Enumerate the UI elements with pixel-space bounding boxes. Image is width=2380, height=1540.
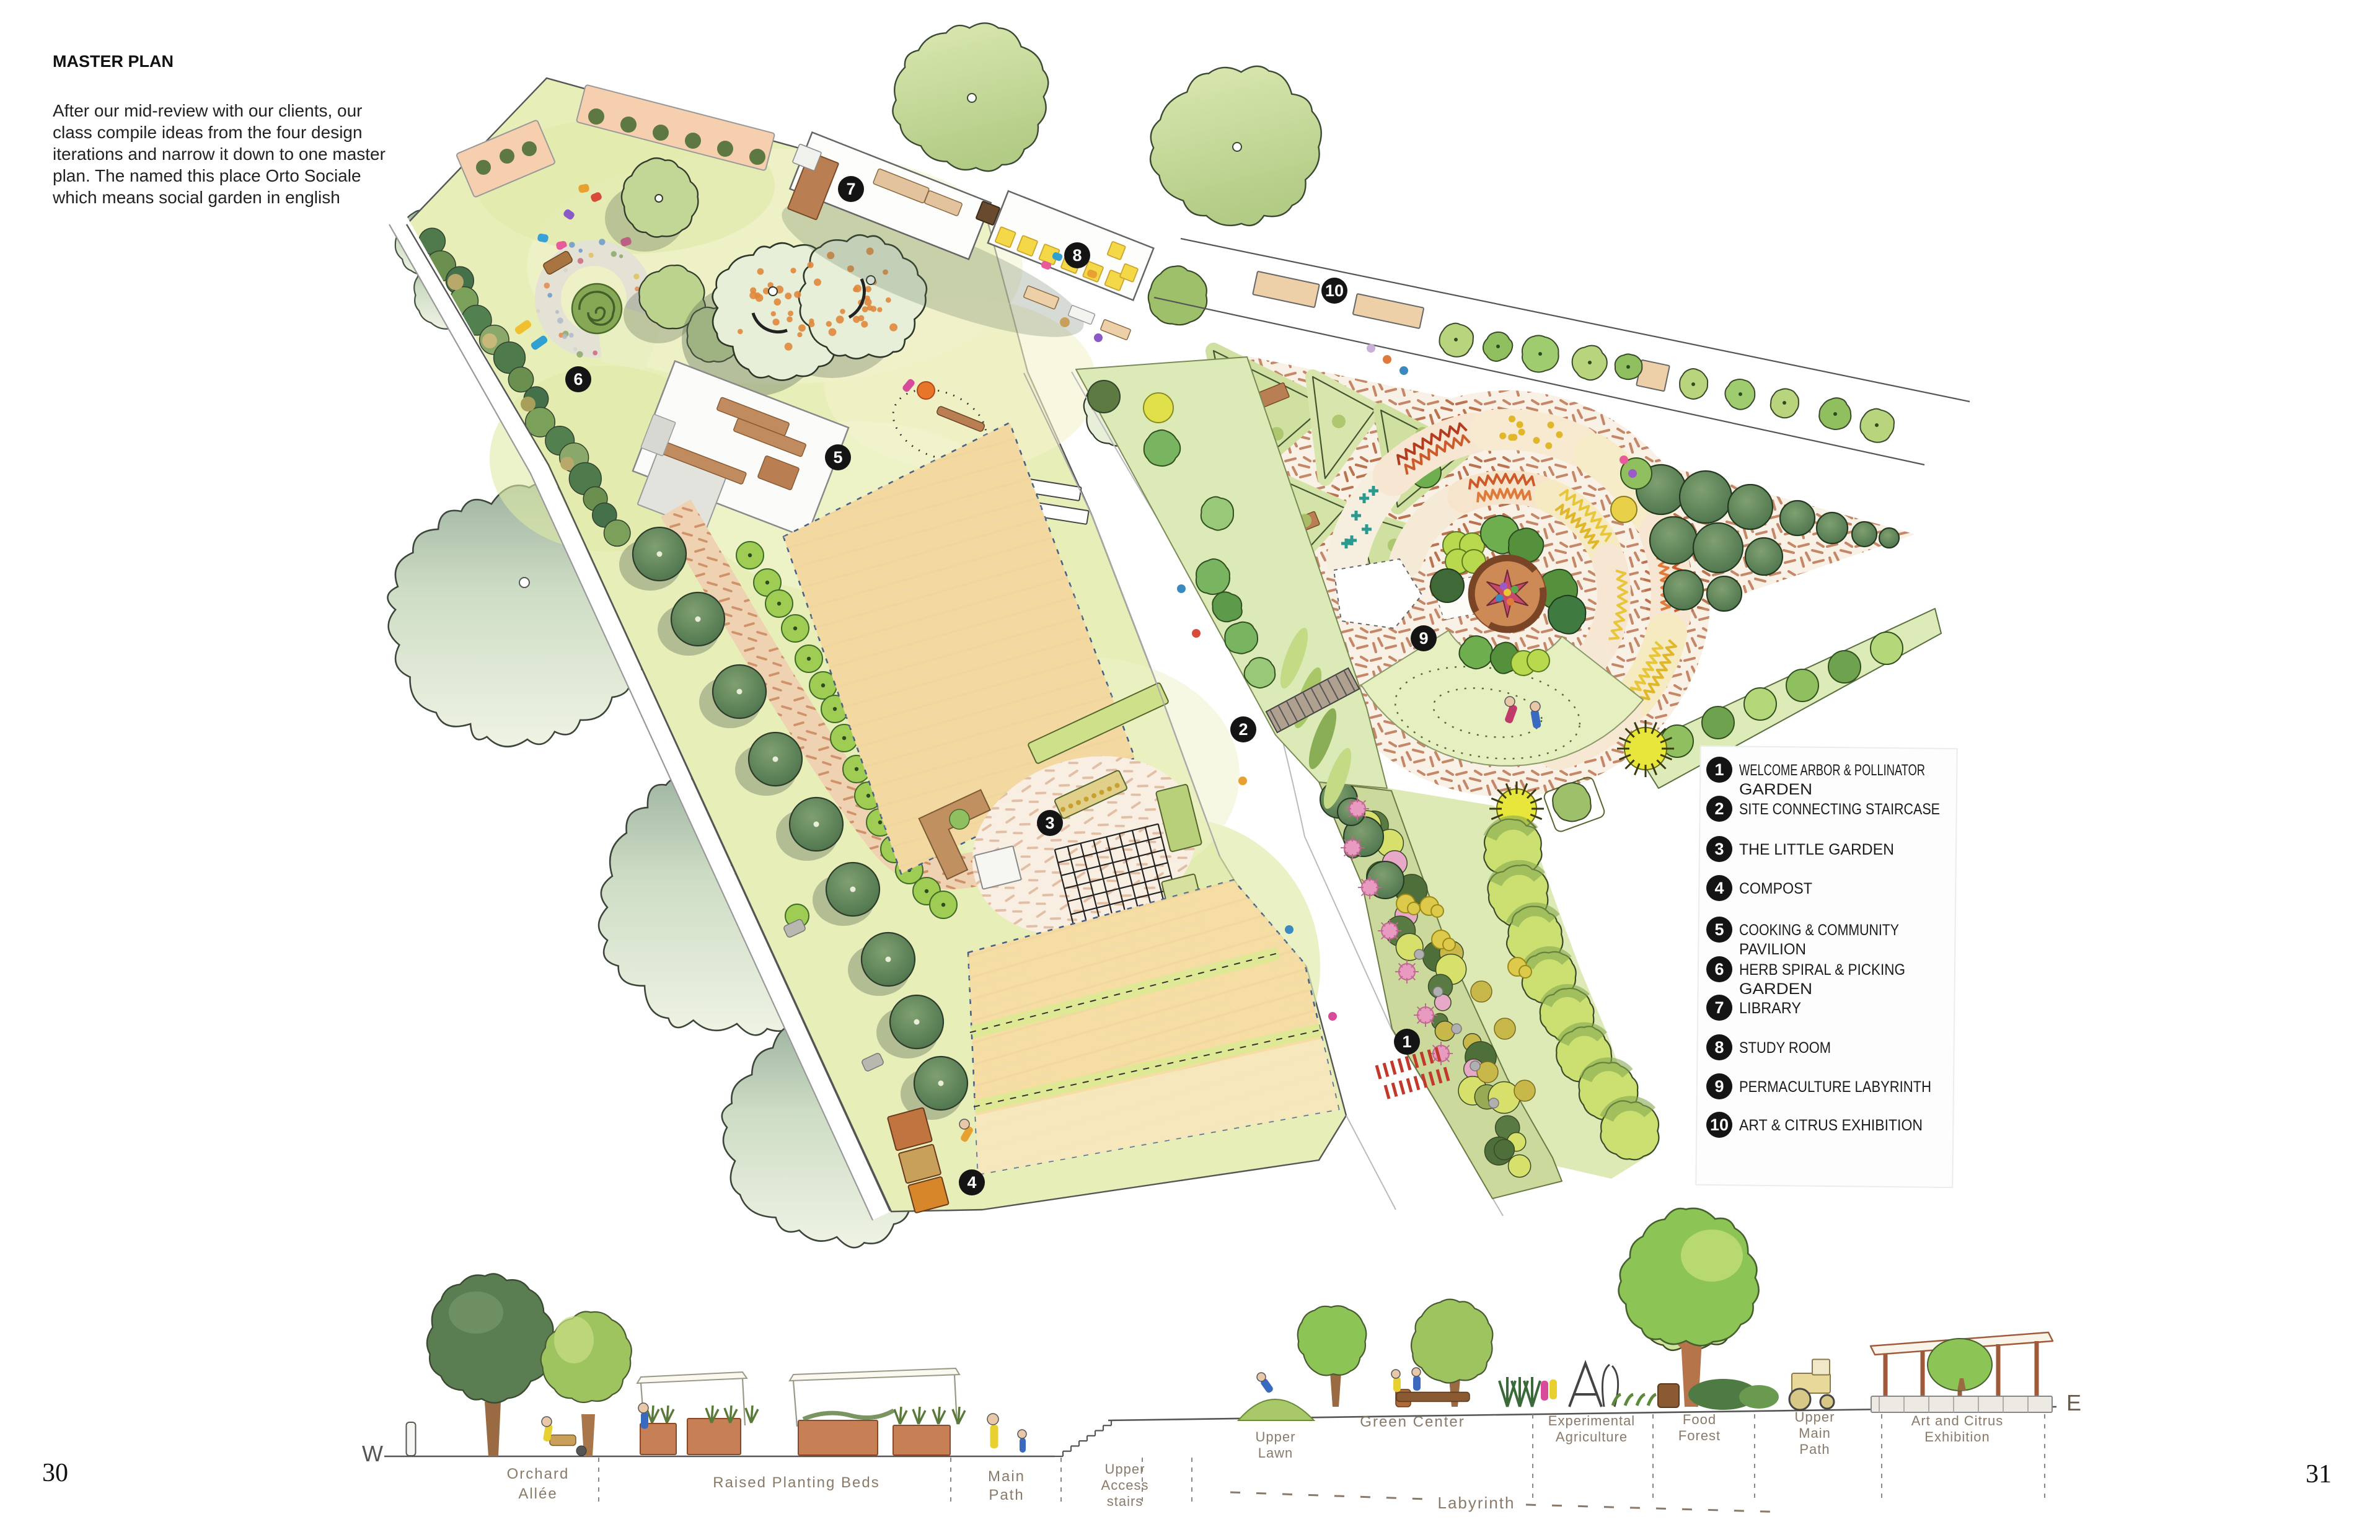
svg-text:plan. The named this place Ort: plan. The named this place Orto Sociale (53, 166, 361, 185)
svg-text:4: 4 (1714, 879, 1724, 897)
svg-text:2: 2 (1714, 799, 1724, 818)
svg-text:1: 1 (1402, 1032, 1411, 1051)
svg-text:Orchard: Orchard (507, 1466, 570, 1482)
svg-text:ART & CITRUS EXHIBITION: ART & CITRUS EXHIBITION (1739, 1117, 1923, 1134)
svg-text:STUDY ROOM: STUDY ROOM (1739, 1039, 1831, 1057)
svg-text:10: 10 (1325, 281, 1344, 300)
svg-text:MASTER PLAN: MASTER PLAN (53, 52, 174, 71)
svg-text:GARDEN: GARDEN (1739, 781, 1812, 798)
svg-text:Raised Planting Beds: Raised Planting Beds (713, 1474, 879, 1491)
svg-text:Upper: Upper (1256, 1429, 1296, 1445)
svg-text:Exhibition: Exhibition (1924, 1429, 1990, 1445)
svg-text:1: 1 (1714, 760, 1724, 779)
svg-text:stairs: stairs (1107, 1494, 1144, 1509)
svg-text:Experimental: Experimental (1548, 1413, 1635, 1428)
svg-text:WELCOME ARBOR & POLLINATOR: WELCOME ARBOR & POLLINATOR (1739, 762, 1925, 779)
svg-text:4: 4 (967, 1173, 976, 1192)
svg-text:Agriculture: Agriculture (1556, 1429, 1628, 1445)
svg-text:8: 8 (1072, 246, 1082, 265)
svg-text:8: 8 (1714, 1038, 1724, 1057)
svg-text:Access: Access (1101, 1477, 1149, 1493)
svg-text:5: 5 (833, 448, 842, 467)
svg-text:E: E (2066, 1390, 2081, 1415)
svg-text:Art and Citrus: Art and Citrus (1911, 1413, 2004, 1428)
svg-text:which means social garden in e: which means social garden in english (52, 188, 340, 207)
svg-text:3: 3 (1714, 840, 1724, 858)
svg-text:HERB SPIRAL & PICKING: HERB SPIRAL & PICKING (1739, 961, 1905, 979)
svg-text:COMPOST: COMPOST (1739, 880, 1812, 897)
svg-text:3: 3 (1045, 814, 1054, 832)
svg-text:Upper: Upper (1795, 1409, 1835, 1425)
svg-text:31: 31 (2306, 1460, 2332, 1489)
svg-text:9: 9 (1419, 629, 1428, 648)
svg-text:SITE CONNECTING STAIRCASE: SITE CONNECTING STAIRCASE (1739, 801, 1940, 818)
svg-text:class compile ideas from the f: class compile ideas from the four design (53, 123, 363, 142)
svg-text:2: 2 (1238, 720, 1248, 739)
svg-text:Allée: Allée (518, 1485, 557, 1502)
svg-text:Green Center: Green Center (1360, 1414, 1465, 1430)
svg-text:THE LITTLE GARDEN: THE LITTLE GARDEN (1739, 841, 1894, 858)
svg-text:6: 6 (573, 370, 583, 389)
svg-text:10: 10 (1710, 1115, 1729, 1134)
svg-text:Path: Path (1799, 1441, 1830, 1457)
svg-text:PAVILION: PAVILION (1739, 941, 1806, 958)
svg-text:W: W (362, 1441, 383, 1466)
svg-text:30: 30 (42, 1459, 68, 1487)
svg-text:PERMACULTURE LABYRINTH: PERMACULTURE LABYRINTH (1739, 1078, 1931, 1096)
svg-text:LIBRARY: LIBRARY (1739, 1000, 1801, 1017)
svg-text:9: 9 (1714, 1077, 1724, 1096)
svg-text:Food: Food (1683, 1412, 1716, 1427)
svg-text:Forest: Forest (1678, 1428, 1721, 1443)
svg-text:7: 7 (1714, 998, 1724, 1017)
svg-text:6: 6 (1714, 960, 1724, 979)
svg-text:Main: Main (988, 1468, 1025, 1485)
svg-text:Upper: Upper (1105, 1461, 1145, 1477)
svg-text:GARDEN: GARDEN (1739, 980, 1812, 998)
svg-text:iterations and narrow it down: iterations and narrow it down to one mas… (53, 144, 386, 164)
svg-text:COOKING & COMMUNITY: COOKING & COMMUNITY (1739, 922, 1899, 939)
svg-text:After our mid-review with our: After our mid-review with our clients, o… (53, 101, 363, 120)
svg-text:7: 7 (846, 180, 855, 198)
svg-text:Main: Main (1799, 1425, 1831, 1441)
svg-text:Path: Path (989, 1487, 1024, 1503)
svg-text:Labyrinth: Labyrinth (1438, 1494, 1515, 1512)
svg-text:5: 5 (1714, 920, 1724, 939)
svg-text:Lawn: Lawn (1258, 1445, 1294, 1461)
